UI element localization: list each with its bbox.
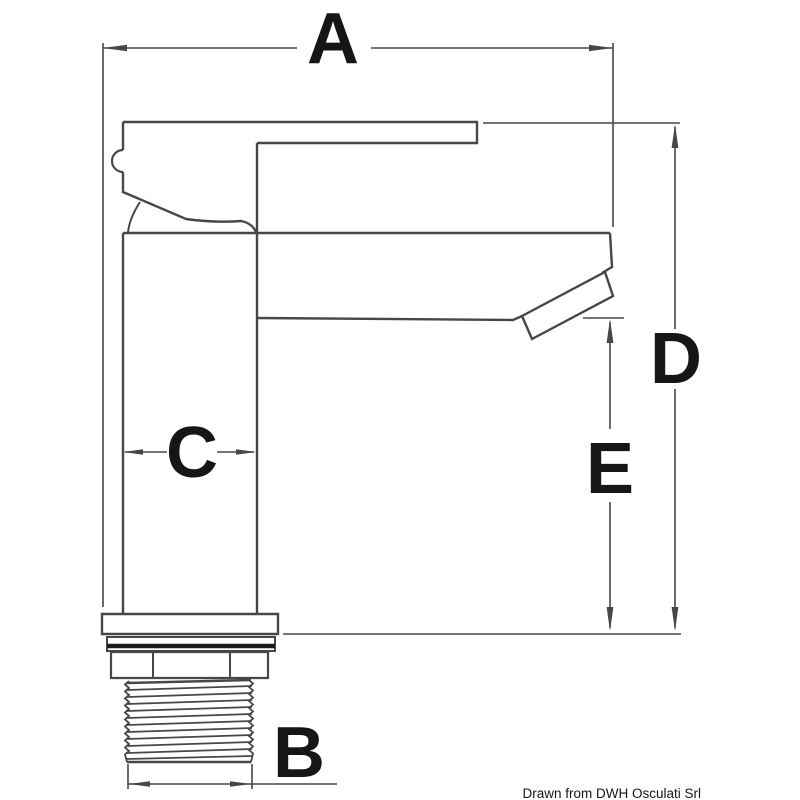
faucet-base xyxy=(102,614,278,762)
arrow-e-top xyxy=(607,319,614,343)
arrow-b-right xyxy=(230,781,252,787)
aerator-tip xyxy=(522,272,613,339)
mounting-flange xyxy=(102,614,278,634)
threaded-shank xyxy=(125,680,253,762)
arrow-c-right xyxy=(236,449,256,455)
faucet-handle xyxy=(112,122,477,233)
drawing-canvas: A B C D E Drawn from DWH Osculati Srl xyxy=(0,0,800,800)
dimension-label-b: B xyxy=(273,713,325,793)
thread-edge-left xyxy=(125,681,129,762)
lever-bar xyxy=(123,122,477,143)
spout-bottom-edge xyxy=(257,316,522,320)
faucet-dimension-drawing: A B C D E Drawn from DWH Osculati Srl xyxy=(0,0,800,800)
arrow-a-left xyxy=(103,45,127,51)
arrow-c-left xyxy=(123,449,143,455)
spout-right-edge xyxy=(602,233,612,273)
handle-inner-curve xyxy=(128,202,140,233)
dimension-label-a: A xyxy=(307,0,359,79)
thread-crest-top xyxy=(127,680,251,683)
arrow-b-left xyxy=(128,781,150,787)
dimension-label-c: C xyxy=(166,413,218,493)
arrow-d-bottom xyxy=(672,607,679,631)
arrow-e-bottom xyxy=(607,607,614,631)
arrow-a-right xyxy=(589,45,613,51)
dimension-label-e: E xyxy=(586,429,634,509)
locknut xyxy=(111,652,268,678)
handle-underside xyxy=(123,192,256,232)
handle-pivot-bump xyxy=(112,150,123,172)
dimension-label-d: D xyxy=(650,319,702,399)
arrow-d-top xyxy=(672,124,679,148)
dimension-d xyxy=(283,123,681,634)
thread-crests xyxy=(126,686,252,759)
dimension-a xyxy=(103,43,613,607)
locknut-facets xyxy=(153,652,230,678)
credit-text: Drawn from DWH Osculati Srl xyxy=(522,786,701,800)
